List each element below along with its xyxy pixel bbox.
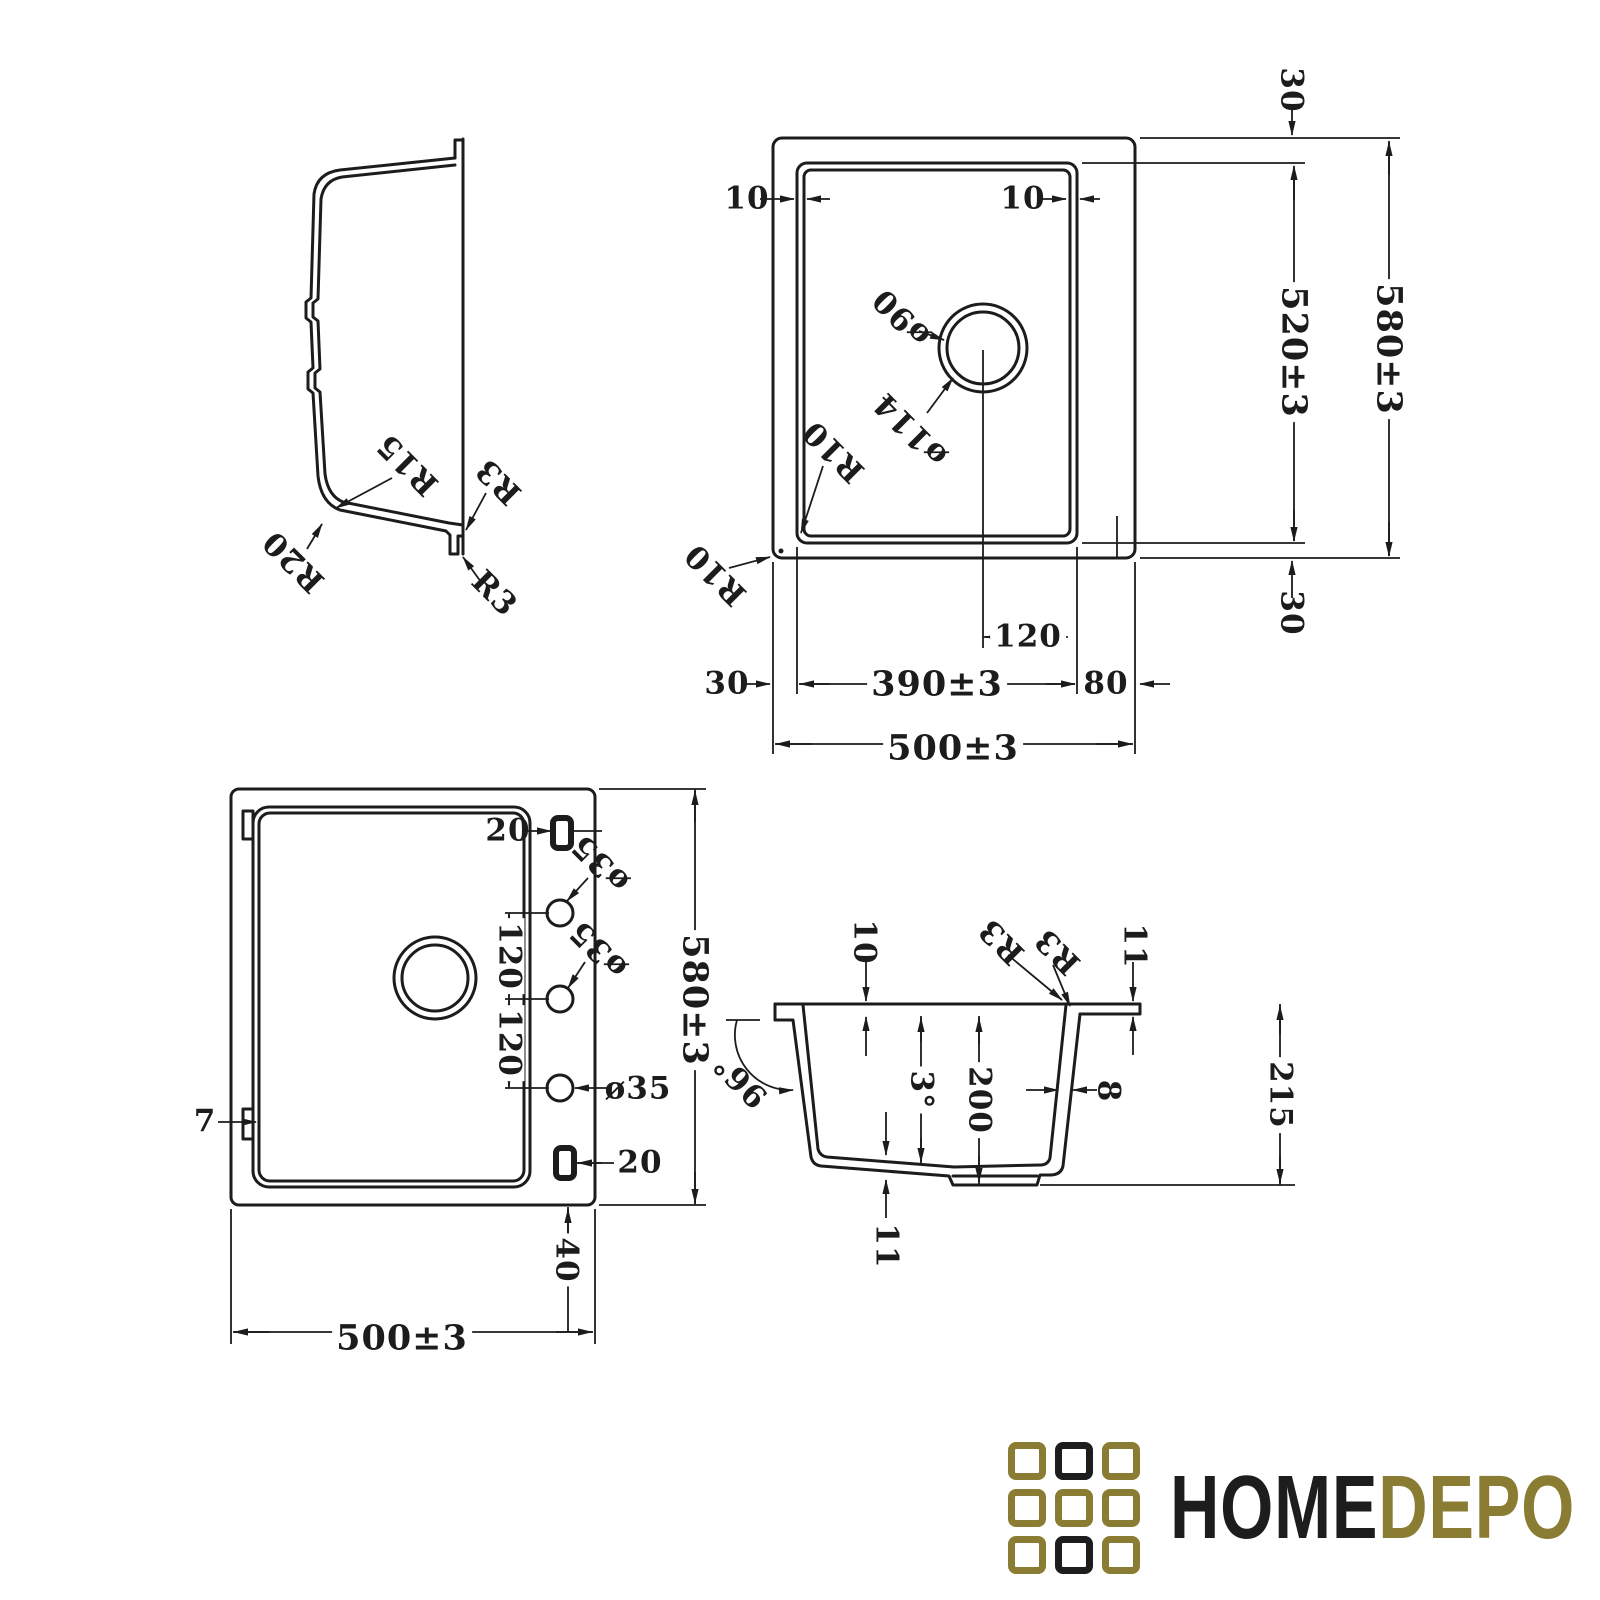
logo-square xyxy=(1055,1489,1093,1527)
dim-label-slot-bottom: 20 xyxy=(617,1148,662,1179)
dim-label-offset-top: 30 xyxy=(1276,67,1307,112)
dim-label-gap-right: 10 xyxy=(1000,184,1045,215)
dim-label-floor-thickness: 11 xyxy=(871,1223,902,1268)
dim-label-offset-left: 30 xyxy=(704,669,749,700)
faucet-hole-2 xyxy=(547,986,573,1012)
logo-wordmark: HOMEDEPO xyxy=(1170,1457,1575,1560)
dim-label-offset-bottom: 30 xyxy=(1276,590,1307,635)
dim-label-bowl-depth: 200 xyxy=(964,1062,995,1138)
drain-hole-bottom-inner xyxy=(402,945,468,1011)
dim-label-wall-thickness: 8 xyxy=(1093,1080,1124,1103)
brand-logo: HOMEDEPO xyxy=(1008,1442,1600,1574)
mounting-clip-bottom xyxy=(243,1109,253,1139)
fixing-slot-bottom xyxy=(556,1148,574,1178)
section-dimension-lines xyxy=(735,955,1280,1218)
drawing-canvas xyxy=(0,0,1600,1600)
faucet-hole-3 xyxy=(547,1075,573,1101)
dim-label-total-height: 215 xyxy=(1265,1057,1296,1133)
drain-hole-bottom-outer xyxy=(394,937,476,1019)
logo-square xyxy=(1102,1536,1140,1574)
logo-text-depo: DEPO xyxy=(1378,1458,1575,1558)
dim-label-edge-height: 11 xyxy=(1119,923,1150,968)
dim-label-overall-height: 580±3 xyxy=(678,930,713,1070)
sink-outline-bottom xyxy=(231,789,595,1205)
bowl-opening-rect xyxy=(797,163,1077,543)
dim-label-floor-angle: 3° xyxy=(906,1066,937,1113)
dim-label-outer-height: 580±3 xyxy=(1372,279,1407,419)
logo-square xyxy=(1055,1536,1093,1574)
dim-label-ledge-width: 80 xyxy=(1083,669,1128,700)
technical-drawing-page: R15 R20 R3 R3 10 10 30 520±3 580±3 30 12… xyxy=(0,0,1600,1600)
logo-square xyxy=(1055,1442,1093,1480)
top-view-extension-lines xyxy=(773,138,1400,754)
faucet-hole-1 xyxy=(547,900,573,926)
logo-square xyxy=(1008,1442,1046,1480)
dim-label-gap-left: 10 xyxy=(724,184,769,215)
logo-grid-icon xyxy=(1008,1442,1140,1574)
logo-square xyxy=(1102,1442,1140,1480)
profile-view xyxy=(306,139,486,582)
dim-label-clip-width: 7 xyxy=(194,1107,217,1138)
logo-square xyxy=(1008,1489,1046,1527)
dim-label-drain-offset: 120 xyxy=(990,622,1066,653)
logo-square xyxy=(1008,1536,1046,1574)
dim-label-hole-pitch-1: 120 xyxy=(494,918,525,994)
logo-text-home: HOME xyxy=(1170,1458,1378,1558)
dim-label-inner-width: 390±3 xyxy=(867,667,1007,702)
dim-label-inner-height: 520±3 xyxy=(1277,282,1312,422)
section-view xyxy=(726,955,1295,1218)
sink-outer-rect xyxy=(773,138,1135,558)
dim-label-overall-width: 500±3 xyxy=(332,1321,472,1356)
dim-label-rim-thickness: 10 xyxy=(849,919,880,964)
logo-square xyxy=(1102,1489,1140,1527)
dim-label-outer-width: 500±3 xyxy=(883,731,1023,766)
dim-label-foot-offset: 40 xyxy=(551,1233,582,1286)
fixing-slot-top xyxy=(553,818,571,848)
mounting-clip-top xyxy=(243,811,253,839)
dim-label-hole3: ø35 xyxy=(605,1074,672,1105)
dim-label-slot-top: 20 xyxy=(485,816,530,847)
dim-label-hole-pitch-2: 120 xyxy=(494,1005,525,1081)
